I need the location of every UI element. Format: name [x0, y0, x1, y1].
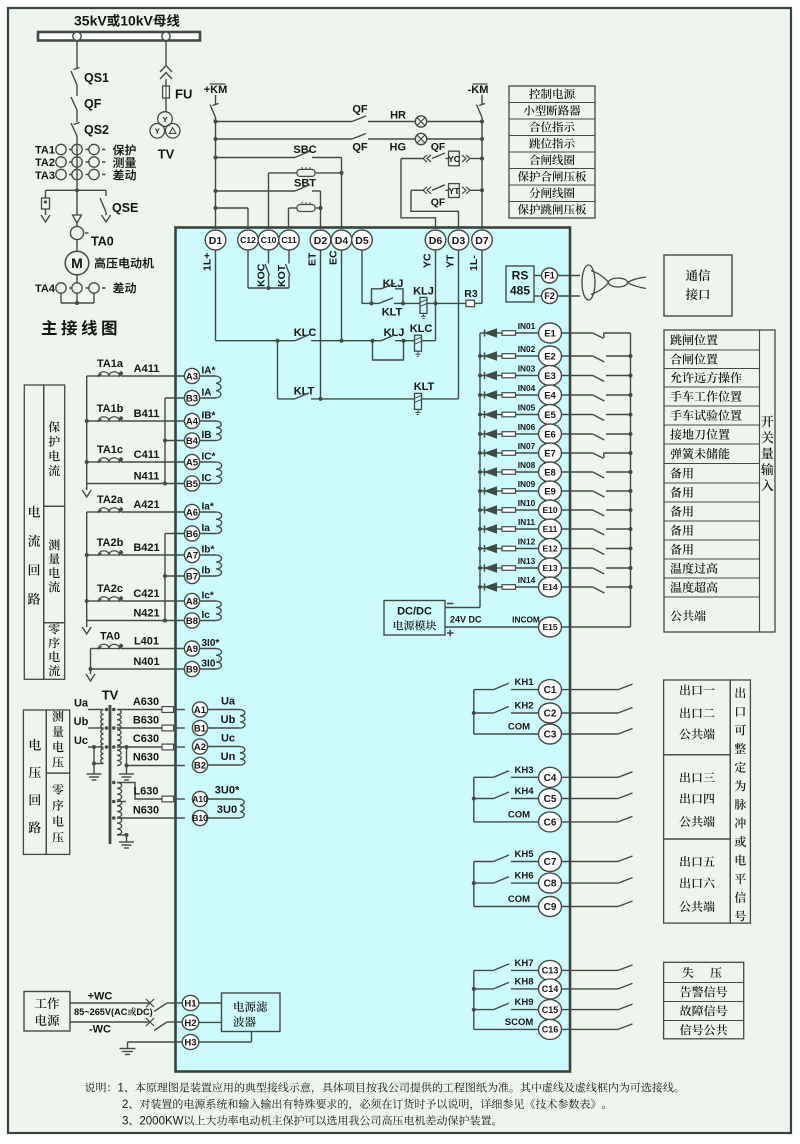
svg-text:A3: A3 [186, 371, 198, 382]
svg-text:D5: D5 [355, 235, 369, 247]
svg-text:485: 485 [510, 284, 530, 298]
svg-text:2: 2 [122, 1099, 128, 1111]
svg-text:IN01: IN01 [518, 321, 536, 331]
svg-text:A10: A10 [192, 794, 208, 804]
svg-text:HR: HR [390, 110, 406, 122]
svg-text:KOT: KOT [276, 264, 288, 287]
svg-text:C9: C9 [544, 902, 557, 913]
svg-text:M: M [71, 255, 83, 271]
svg-text:Y: Y [155, 127, 160, 136]
svg-text:Ua: Ua [221, 696, 236, 708]
svg-text:KH6: KH6 [514, 871, 533, 882]
svg-text:B9: B9 [186, 664, 198, 675]
svg-text:IN13: IN13 [518, 556, 536, 566]
svg-text:C421: C421 [133, 588, 159, 600]
svg-text:A1: A1 [194, 705, 207, 716]
svg-text:KLC: KLC [410, 323, 433, 335]
svg-text:B630: B630 [133, 715, 159, 727]
svg-text:C630: C630 [133, 733, 159, 745]
svg-text:B411: B411 [134, 408, 160, 420]
svg-text:A9: A9 [186, 644, 198, 655]
svg-text:F1: F1 [544, 271, 555, 281]
svg-text:KLC: KLC [294, 327, 317, 339]
svg-text:IC*: IC* [202, 452, 216, 463]
svg-text:N401: N401 [133, 656, 159, 668]
svg-text:10kV: 10kV [120, 13, 153, 29]
svg-text:IN05: IN05 [518, 402, 536, 412]
svg-text:85~265V(AC: 85~265V(AC [74, 1007, 128, 1017]
svg-text:C6: C6 [544, 818, 557, 829]
svg-text:TV: TV [158, 147, 175, 162]
svg-text:E9: E9 [544, 486, 556, 497]
svg-text:B10: B10 [192, 813, 208, 823]
svg-text:KH7: KH7 [514, 958, 533, 969]
svg-text:EC: EC [328, 250, 340, 265]
svg-text:-KM: -KM [468, 84, 489, 96]
svg-text:KLT: KLT [382, 307, 403, 319]
svg-text:3I0*: 3I0* [202, 638, 220, 649]
svg-text:Ia: Ia [202, 523, 211, 534]
svg-text:-WC: -WC [89, 1024, 111, 1036]
svg-text:B3: B3 [186, 393, 198, 404]
svg-text:E11: E11 [543, 524, 558, 534]
svg-text:A2: A2 [194, 742, 206, 753]
svg-text:D3: D3 [452, 235, 466, 247]
svg-text:Ib: Ib [202, 566, 211, 577]
svg-text:C11: C11 [281, 235, 297, 245]
svg-text:E14: E14 [542, 582, 557, 592]
svg-text:A8: A8 [186, 596, 198, 607]
svg-text:TA4: TA4 [35, 283, 56, 295]
svg-text:IN11: IN11 [518, 517, 535, 527]
svg-text:Y: Y [162, 115, 167, 124]
svg-text:3: 3 [122, 1116, 128, 1128]
svg-text:H1: H1 [184, 998, 197, 1009]
svg-text:3U0*: 3U0* [215, 785, 240, 797]
svg-text:IA: IA [202, 388, 212, 399]
svg-text:TA1b: TA1b [97, 403, 124, 415]
svg-text:E1: E1 [544, 328, 556, 339]
svg-text:B4: B4 [186, 436, 199, 447]
svg-text:TA1a: TA1a [97, 358, 124, 370]
svg-text:QF: QF [84, 97, 102, 111]
svg-text:RS: RS [512, 269, 529, 283]
svg-text:C14: C14 [542, 984, 559, 994]
svg-text:D6: D6 [429, 235, 443, 247]
svg-text:TA0: TA0 [100, 631, 120, 643]
svg-text:E10: E10 [542, 505, 557, 515]
svg-text:Uc: Uc [221, 733, 235, 745]
svg-text:C1: C1 [544, 685, 557, 696]
svg-text:QSE: QSE [112, 201, 138, 215]
svg-text:B421: B421 [133, 542, 159, 554]
svg-text:H2: H2 [184, 1018, 196, 1029]
svg-text:B6: B6 [186, 529, 198, 540]
svg-text:QF: QF [352, 104, 368, 116]
svg-text:QS2: QS2 [84, 123, 109, 137]
svg-text:L630: L630 [133, 786, 158, 798]
svg-text:YT: YT [449, 186, 461, 196]
svg-text:+KM: +KM [204, 84, 228, 96]
svg-text:FU: FU [175, 87, 192, 102]
svg-text:3I0: 3I0 [202, 659, 216, 670]
svg-text:KLT: KLT [414, 381, 435, 393]
svg-text:2000KW: 2000KW [139, 1116, 183, 1128]
svg-text:IA*: IA* [202, 366, 216, 377]
svg-text:TA2c: TA2c [97, 583, 123, 595]
svg-text:N630: N630 [133, 752, 159, 764]
svg-text:TA1c: TA1c [97, 444, 123, 456]
svg-text:INCOM: INCOM [512, 615, 540, 625]
svg-text:A7: A7 [186, 550, 198, 561]
svg-text:1: 1 [118, 1083, 124, 1095]
svg-text:E4: E4 [544, 390, 556, 401]
svg-text:E15: E15 [542, 622, 557, 632]
svg-text:E7: E7 [544, 448, 556, 459]
svg-text:COM: COM [508, 809, 530, 820]
svg-text:TA1: TA1 [35, 145, 55, 157]
svg-text:COM: COM [508, 894, 530, 905]
svg-text:KH9: KH9 [514, 997, 533, 1008]
svg-text:A421: A421 [133, 499, 159, 511]
svg-text:Uc: Uc [74, 735, 88, 747]
svg-text:B1: B1 [194, 723, 207, 734]
svg-text:C13: C13 [542, 966, 559, 976]
svg-text:KH8: KH8 [514, 976, 533, 987]
svg-text:IN10: IN10 [518, 498, 536, 508]
svg-text:Ub: Ub [74, 716, 89, 728]
svg-text:IN14: IN14 [518, 575, 536, 585]
svg-text:A6: A6 [186, 507, 198, 518]
svg-text:Ia*: Ia* [202, 502, 214, 513]
svg-text:KH1: KH1 [514, 677, 534, 688]
svg-text:HG: HG [390, 142, 407, 154]
svg-text:E8: E8 [544, 467, 556, 478]
svg-text:SCOM: SCOM [505, 1017, 534, 1028]
svg-text:B8: B8 [186, 616, 198, 627]
svg-text:E3: E3 [544, 371, 556, 382]
svg-text:R3: R3 [464, 288, 478, 300]
svg-text:C10: C10 [261, 235, 277, 245]
svg-text:+WC: +WC [88, 991, 113, 1003]
svg-text:N630: N630 [133, 805, 159, 817]
svg-text:A5: A5 [186, 457, 199, 468]
svg-text:E6: E6 [544, 429, 556, 440]
svg-text:A630: A630 [133, 696, 159, 708]
svg-text:1L-: 1L- [468, 255, 480, 271]
svg-text:SBT: SBT [294, 178, 316, 190]
svg-text:KH4: KH4 [514, 786, 534, 797]
svg-text:Ic: Ic [202, 610, 211, 621]
svg-text:YT: YT [445, 254, 457, 268]
svg-text:B7: B7 [186, 571, 198, 582]
svg-text:D1: D1 [209, 235, 223, 247]
svg-text:IN09: IN09 [518, 479, 536, 489]
svg-text:A411: A411 [134, 363, 160, 375]
svg-text:YC: YC [422, 253, 434, 268]
svg-text:3U0: 3U0 [217, 804, 237, 816]
svg-text:Ic*: Ic* [202, 591, 214, 602]
svg-text:IN03: IN03 [518, 363, 536, 373]
svg-text:C411: C411 [134, 449, 160, 461]
svg-text:IN04: IN04 [518, 383, 536, 393]
svg-text:TA2: TA2 [35, 157, 55, 169]
svg-text:A4: A4 [186, 416, 199, 427]
svg-text:1L+: 1L+ [202, 253, 214, 271]
svg-text:KLJ: KLJ [384, 327, 405, 339]
svg-text:Ua: Ua [74, 698, 89, 710]
svg-text:C5: C5 [544, 794, 557, 805]
svg-text:COM: COM [508, 722, 530, 733]
svg-text:Ib*: Ib* [202, 545, 215, 556]
svg-text:IB: IB [202, 430, 212, 441]
svg-text:DC): DC) [136, 1007, 152, 1017]
svg-text:KOC: KOC [256, 263, 268, 287]
svg-text:C16: C16 [542, 1025, 559, 1035]
svg-text:TA2a: TA2a [97, 494, 124, 506]
svg-text:QS1: QS1 [84, 71, 109, 85]
svg-text:KH3: KH3 [514, 765, 533, 776]
svg-text:B5: B5 [186, 479, 199, 490]
svg-text:C3: C3 [544, 730, 557, 741]
svg-text:KH2: KH2 [514, 701, 533, 712]
svg-text:C8: C8 [544, 879, 557, 890]
svg-text:B2: B2 [194, 760, 206, 771]
svg-text:QF: QF [352, 142, 368, 154]
svg-text:E13: E13 [542, 563, 557, 573]
svg-text:QF: QF [431, 197, 446, 209]
svg-text:E5: E5 [544, 410, 556, 421]
svg-text:IN08: IN08 [518, 460, 536, 470]
svg-text:H3: H3 [184, 1037, 196, 1048]
svg-text:YC: YC [448, 154, 460, 164]
svg-text:E2: E2 [544, 351, 556, 362]
svg-text:Un: Un [221, 751, 236, 763]
svg-text:24V DC: 24V DC [450, 615, 482, 625]
svg-text:N411: N411 [134, 471, 160, 483]
svg-text:KH5: KH5 [514, 849, 534, 860]
svg-text:KLJ: KLJ [413, 285, 434, 297]
svg-text:IN12: IN12 [518, 536, 536, 546]
svg-text:C12: C12 [240, 235, 256, 245]
svg-text:IC: IC [202, 473, 212, 484]
svg-text:Ub: Ub [221, 714, 236, 726]
svg-text:D2: D2 [314, 235, 328, 247]
svg-text:TA2b: TA2b [97, 537, 124, 549]
svg-text:IB*: IB* [202, 411, 216, 422]
svg-text:N421: N421 [133, 608, 159, 620]
svg-text:ET: ET [307, 252, 319, 266]
svg-text:C4: C4 [544, 773, 557, 784]
svg-text:SBC: SBC [293, 144, 316, 156]
svg-text:QF: QF [431, 141, 446, 153]
svg-text:TA3: TA3 [35, 170, 55, 182]
svg-text:E12: E12 [542, 544, 557, 554]
svg-text:C7: C7 [544, 857, 557, 868]
svg-text:TV: TV [102, 688, 119, 703]
svg-text:IN06: IN06 [518, 422, 536, 432]
svg-text:IN07: IN07 [518, 441, 536, 451]
svg-text:35kV: 35kV [74, 13, 107, 29]
svg-text:C15: C15 [542, 1005, 559, 1015]
svg-text:IN02: IN02 [518, 344, 536, 354]
svg-text:F2: F2 [544, 291, 555, 301]
svg-text:C2: C2 [544, 709, 557, 720]
svg-text:D4: D4 [335, 235, 349, 247]
svg-text:L401: L401 [134, 636, 159, 648]
svg-text:DC/DC: DC/DC [397, 606, 432, 618]
svg-text:D7: D7 [475, 235, 489, 247]
svg-text:TA0: TA0 [91, 235, 114, 249]
